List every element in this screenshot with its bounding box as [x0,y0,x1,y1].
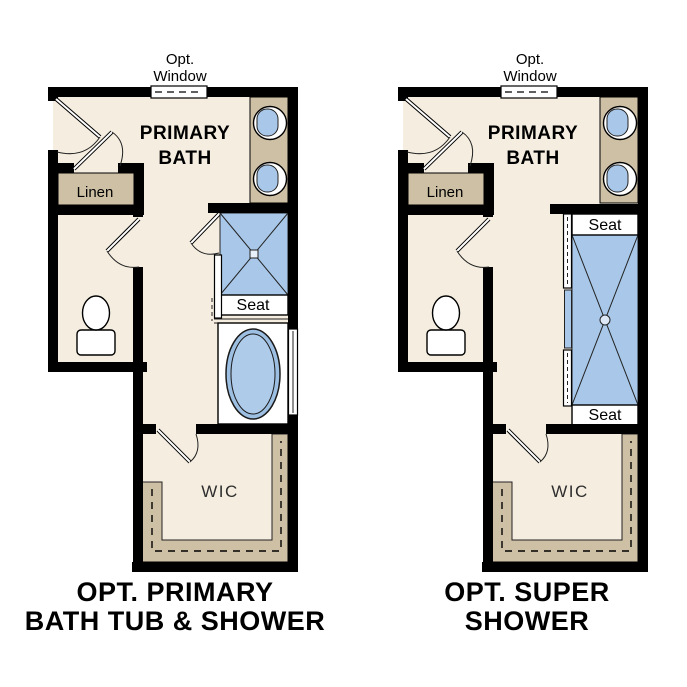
sink-bowl [257,165,278,192]
optional-window [501,86,557,98]
toilet-bowl [83,296,110,330]
plan-caption: OPT. PRIMARY [76,577,273,607]
plan-caption: OPT. SUPER [444,577,610,607]
vanity [600,97,638,203]
toilet-bowl [433,296,460,330]
wall-segment [48,150,58,372]
wall-segment [48,163,74,173]
floor-plan-figure: Opt. Window PRIMARY BATH Linen Seat WIC … [0,0,687,687]
wall-segment [546,424,648,434]
opt-window-note: Window [153,68,207,85]
toilet-tank [77,330,115,355]
seat-bottom-label: Seat [589,407,622,424]
tub-basin [231,334,275,414]
wall-segment [483,424,506,434]
shower-door [565,290,572,348]
wall-segment [206,87,298,97]
wall-segment [133,267,143,572]
wall-segment [550,204,648,214]
shower-glass-panel [215,255,222,318]
shower-drain [250,250,258,258]
wall-segment [133,424,156,434]
wall-segment [208,203,298,213]
linen-label: Linen [77,184,114,201]
wall-segment [398,362,497,372]
wall-segment [398,150,408,372]
room-label: BATH [158,148,211,169]
wall-segment [482,562,648,572]
room-label: BATH [506,148,559,169]
wall-segment [398,163,424,173]
toilet-tank [427,330,465,355]
plan-caption: SHOWER [465,606,590,636]
super-shower [564,214,639,425]
wall-segment [483,205,493,217]
room-label: PRIMARY [140,123,230,144]
floor-plan-canvas: Opt. Window PRIMARY BATH Linen Seat WIC … [0,0,687,687]
linen-label: Linen [427,184,464,201]
plan-caption: BATH TUB & SHOWER [25,606,325,636]
opt-window-note: Window [503,68,557,85]
bathtub [218,323,288,424]
wall-segment [196,424,298,434]
wall-segment [48,205,144,215]
wic-label: WIC [201,482,239,501]
wall-segment [288,413,298,572]
plan-super-shower: Opt. Window PRIMARY BATH Linen Seat Seat… [398,51,648,636]
wall-segment [398,87,502,97]
wall-segment [133,205,143,217]
wall-segment [556,87,648,97]
optional-window [151,86,207,98]
seat-top-label: Seat [589,217,622,234]
wall-segment [48,362,147,372]
wall-segment [48,87,152,97]
sink-bowl [607,109,628,136]
opt-window-note: Opt. [166,51,194,68]
wall-segment [483,267,493,572]
sink-bowl [607,165,628,192]
shower-drain [600,315,610,325]
opt-window-note: Opt. [516,51,544,68]
vanity [250,97,288,203]
sink-bowl [257,109,278,136]
wall-segment [398,205,494,215]
wic-label: WIC [551,482,589,501]
tub-window [289,329,298,415]
seat-label: Seat [237,297,270,314]
room-label: PRIMARY [488,123,578,144]
wall-segment [638,87,648,572]
plan-tub-and-shower: Opt. Window PRIMARY BATH Linen Seat WIC … [25,51,325,636]
wall-segment [132,562,298,572]
